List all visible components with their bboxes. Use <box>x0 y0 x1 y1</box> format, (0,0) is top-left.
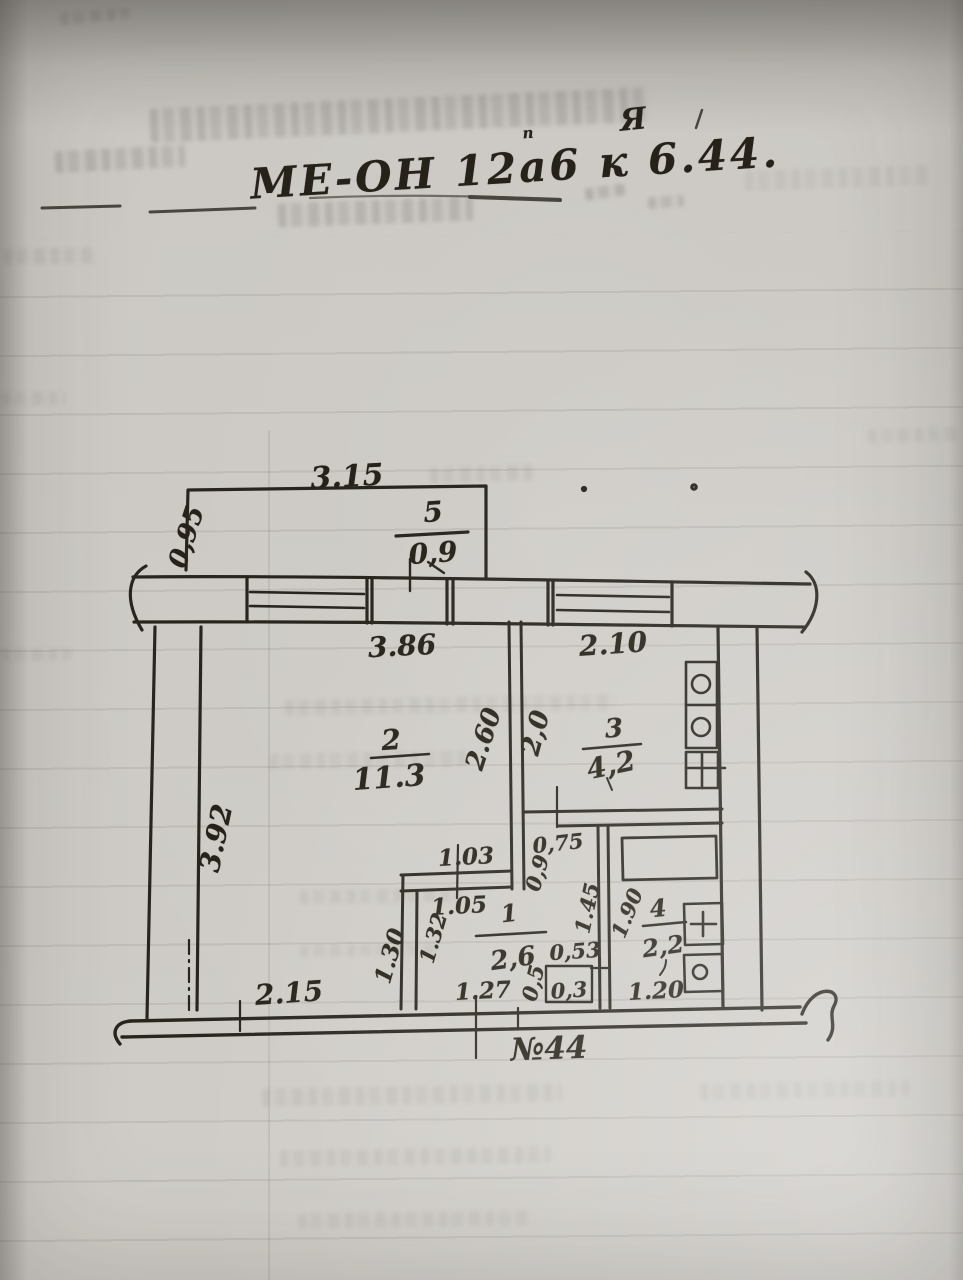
dim-balcony-width: 3.15 <box>310 458 385 497</box>
title-superscript: Я <box>618 101 648 139</box>
dim-toilet-width: 0,53 <box>549 937 602 966</box>
scanned-floorplan-photo: МЕ-ОН 12а6 к 6.44. Я п 3.15 0,95 5 0,9 3… <box>0 0 963 1280</box>
dim-hall-bottom: 1.27 <box>454 976 511 1006</box>
room-hall-number: 1 <box>499 898 519 929</box>
kitchen-sink-icon <box>686 752 725 788</box>
dim-bath-bottom: 1.20 <box>627 976 684 1006</box>
toilet-icon <box>684 954 723 992</box>
washbasin-icon <box>684 903 723 945</box>
dim-living-bottom: 2.15 <box>254 974 324 1012</box>
title-diacritic: п <box>522 124 534 143</box>
exterior-wall-right <box>718 627 762 1010</box>
window-symbol-kitchen <box>557 595 669 612</box>
dim-hall-top-upper: 1.03 <box>437 842 494 872</box>
exterior-wall-left <box>147 627 201 1018</box>
room-living-area: 11.3 <box>351 758 426 798</box>
stove-icon <box>686 662 717 748</box>
room-kitchen-number: 3 <box>604 713 624 744</box>
dim-kitchen-window: 2.10 <box>578 625 648 663</box>
room-bathroom-area: 2,2 <box>640 929 685 964</box>
room-balcony-number: 5 <box>422 495 444 529</box>
bathtub-icon <box>622 836 717 880</box>
dim-toilet-depth-b: 0,3 <box>550 976 588 1003</box>
dim-living-window: 3.86 <box>367 628 437 665</box>
room-bathroom-number: 4 <box>648 893 668 924</box>
apartment-number-label: №44 <box>510 1030 588 1069</box>
room-living-number: 2 <box>380 723 402 757</box>
room-balcony-area: 0,9 <box>408 535 459 571</box>
exterior-wall-top <box>130 559 817 632</box>
window-symbol-living <box>250 592 364 608</box>
